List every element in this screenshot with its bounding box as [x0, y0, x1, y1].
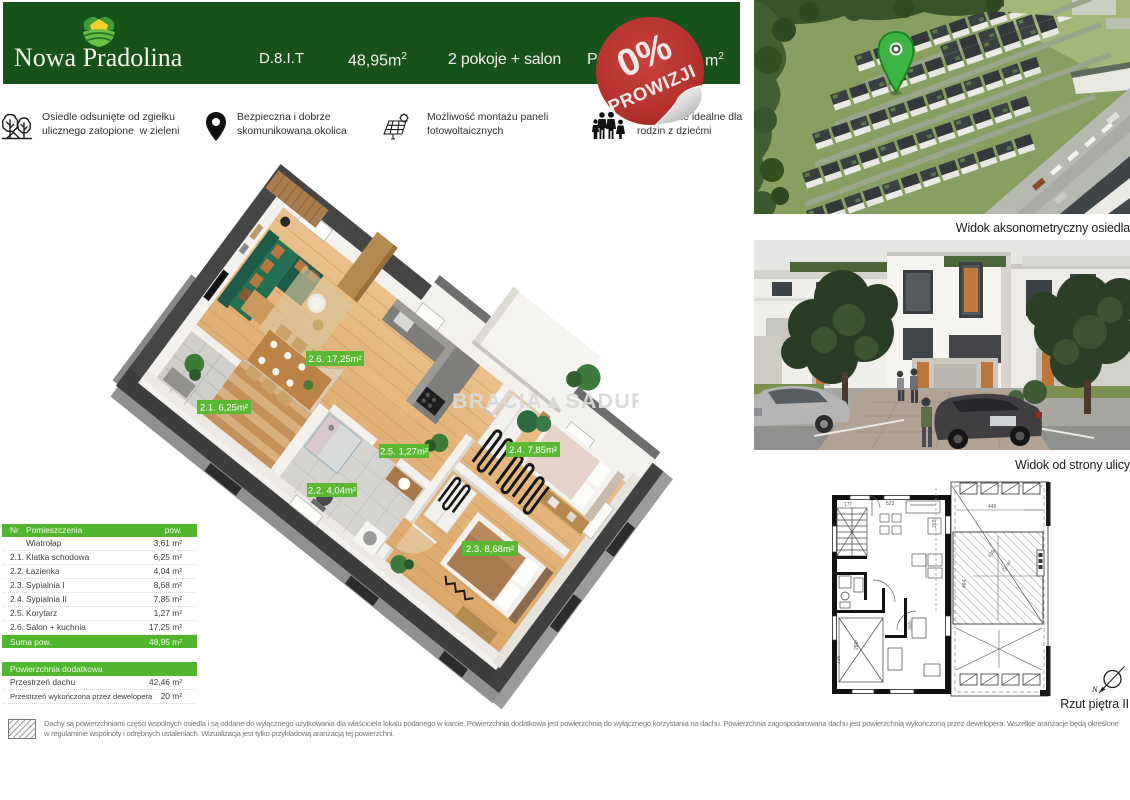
svg-text:2.6. 17,25m²: 2.6. 17,25m² — [308, 354, 361, 365]
svg-text:464: 464 — [962, 579, 968, 588]
svg-text:315: 315 — [836, 655, 842, 664]
svg-text:305⁵: 305⁵ — [908, 620, 914, 630]
svg-text:202⁵: 202⁵ — [932, 518, 938, 528]
svg-text:2.4. 7,85m²: 2.4. 7,85m² — [509, 445, 557, 456]
svg-text:2.1. 6,25m²: 2.1. 6,25m² — [200, 403, 248, 414]
svg-text:177: 177 — [844, 502, 853, 508]
svg-text:2.5. 1,27m²: 2.5. 1,27m² — [380, 447, 428, 458]
svg-text:2.3. 8,68m²: 2.3. 8,68m² — [466, 544, 514, 555]
svg-text:2.2. 4,04m²: 2.2. 4,04m² — [308, 486, 356, 497]
svg-text:N: N — [1091, 684, 1099, 694]
svg-text:449: 449 — [988, 504, 997, 510]
svg-text:296⁵: 296⁵ — [854, 640, 860, 650]
svg-text:523: 523 — [886, 501, 895, 507]
svg-text:BRACIA▲SADURSCY: BRACIA▲SADURSCY — [452, 389, 696, 413]
